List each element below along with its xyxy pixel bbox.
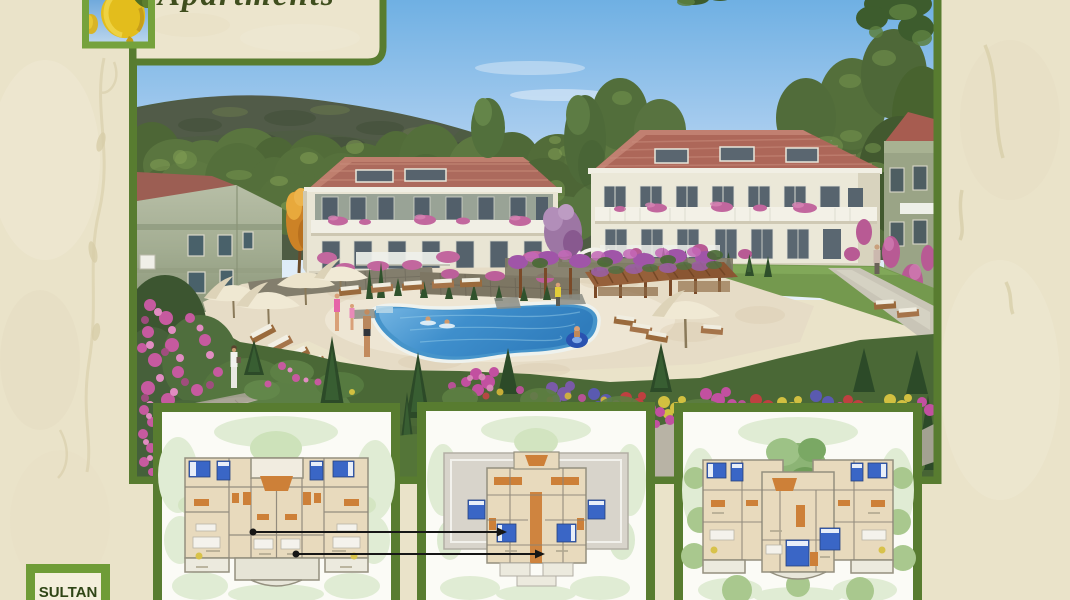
svg-text:SULTAN: SULTAN bbox=[39, 584, 98, 600]
svg-text:Apartments: Apartments bbox=[156, 0, 336, 13]
